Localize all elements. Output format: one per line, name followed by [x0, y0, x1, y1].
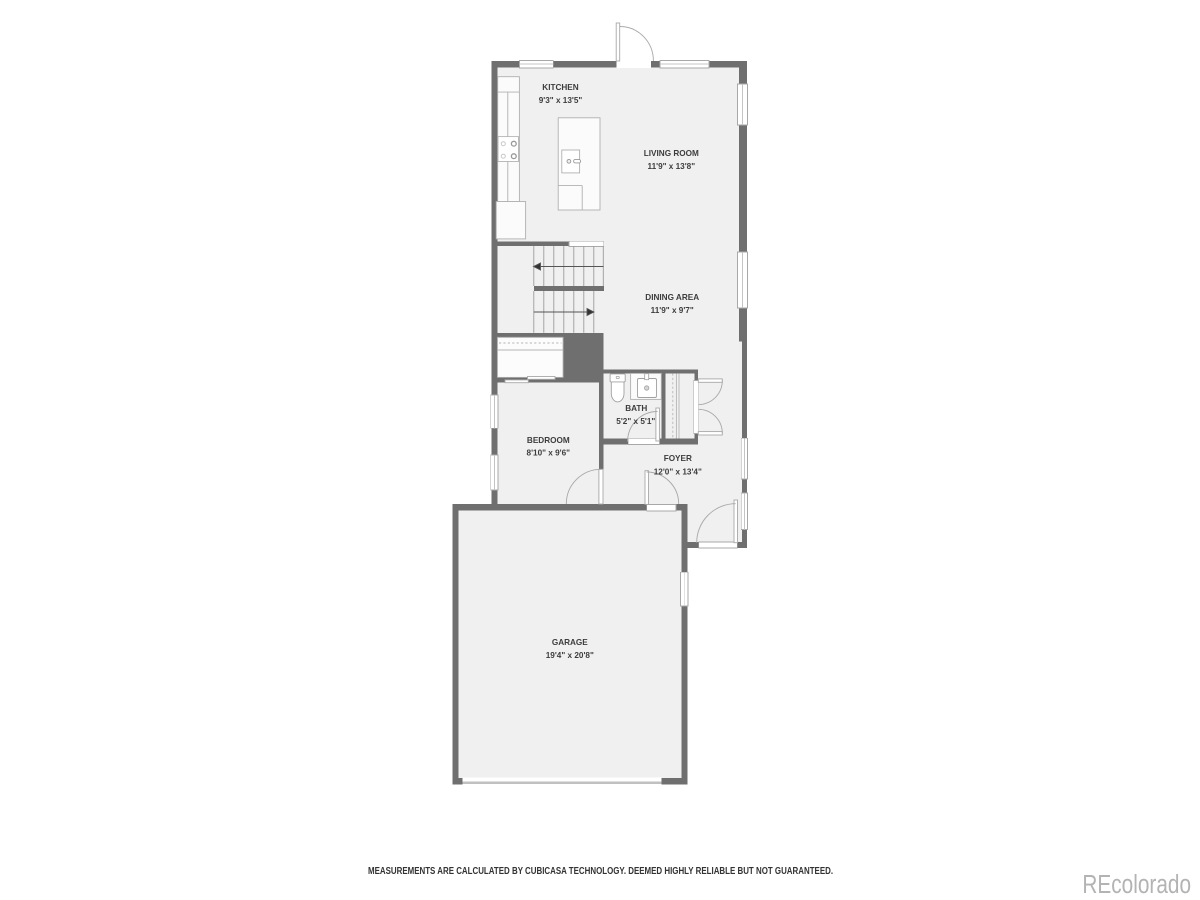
- svg-text:9'3" x 13'5": 9'3" x 13'5": [539, 96, 583, 105]
- svg-text:19'4" x 20'8": 19'4" x 20'8": [546, 651, 594, 660]
- svg-text:MEASUREMENTS ARE CALCULATED BY: MEASUREMENTS ARE CALCULATED BY CUBICASA …: [368, 865, 833, 876]
- svg-text:8'10" x 9'6": 8'10" x 9'6": [527, 449, 571, 458]
- svg-text:GARAGE: GARAGE: [552, 638, 588, 647]
- svg-text:REcolorado: REcolorado: [1082, 870, 1191, 899]
- svg-text:LIVING ROOM: LIVING ROOM: [644, 149, 699, 158]
- svg-text:BATH: BATH: [625, 404, 647, 413]
- svg-text:BEDROOM: BEDROOM: [527, 436, 570, 445]
- svg-text:11'9" x 9'7": 11'9" x 9'7": [651, 306, 694, 315]
- svg-text:FOYER: FOYER: [664, 454, 692, 463]
- svg-text:KITCHEN: KITCHEN: [542, 83, 578, 92]
- svg-text:DINING AREA: DINING AREA: [645, 293, 699, 302]
- svg-text:11'9" x 13'8": 11'9" x 13'8": [647, 162, 695, 171]
- svg-text:12'0" x 13'4": 12'0" x 13'4": [654, 467, 702, 476]
- svg-text:5'2" x 5'1": 5'2" x 5'1": [616, 417, 655, 426]
